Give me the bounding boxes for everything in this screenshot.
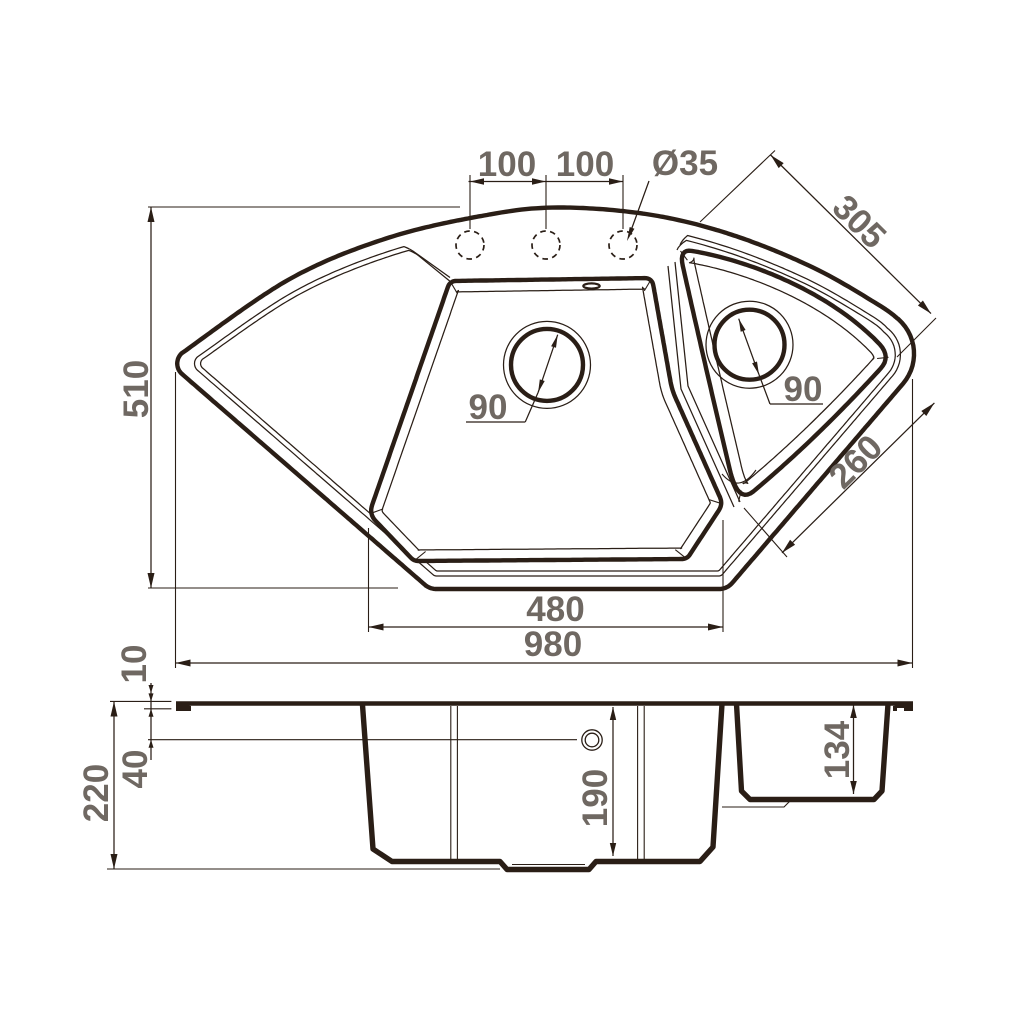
svg-text:90: 90 — [469, 388, 508, 427]
svg-text:980: 980 — [524, 625, 582, 664]
svg-text:90: 90 — [784, 370, 823, 409]
svg-text:190: 190 — [576, 769, 615, 827]
svg-text:100: 100 — [478, 145, 536, 184]
svg-text:10: 10 — [115, 645, 154, 684]
svg-text:134: 134 — [818, 720, 857, 779]
svg-text:40: 40 — [116, 750, 155, 789]
svg-text:Ø35: Ø35 — [652, 144, 718, 183]
svg-text:100: 100 — [556, 145, 614, 184]
svg-text:220: 220 — [77, 764, 116, 822]
svg-text:480: 480 — [526, 590, 584, 629]
svg-text:510: 510 — [117, 360, 156, 418]
